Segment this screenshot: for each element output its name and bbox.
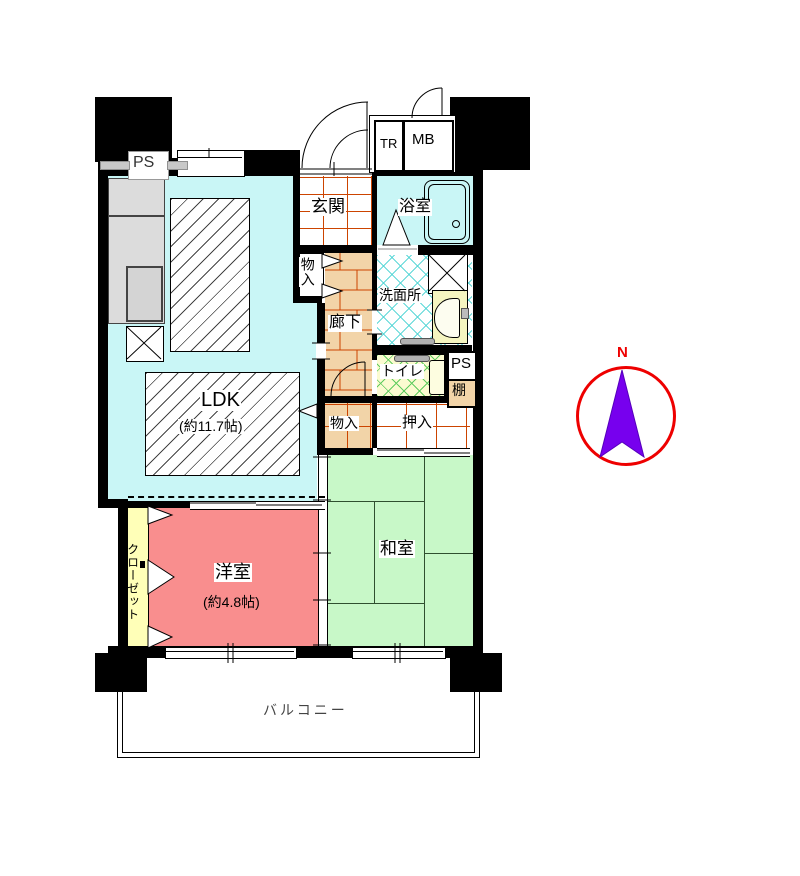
bath-sill bbox=[377, 245, 418, 255]
label-hallway: 廊下 bbox=[328, 315, 362, 332]
ps-hatch-mark bbox=[100, 161, 130, 170]
kitchen-sink bbox=[126, 266, 163, 322]
window-bottom-east-sash bbox=[353, 651, 443, 652]
wall bbox=[293, 245, 372, 253]
ps-hatch-mark bbox=[167, 161, 188, 170]
refrigerator bbox=[108, 178, 165, 216]
label-balcony: バルコニー bbox=[262, 703, 349, 718]
label-western: 洋室 bbox=[214, 563, 252, 582]
door-opening bbox=[316, 343, 326, 359]
washing-machine-pan bbox=[428, 254, 468, 294]
label-western-size: (約4.8帖) bbox=[202, 595, 261, 610]
label-storage-hall: 物入 bbox=[299, 257, 316, 287]
label-ps-mid: PS bbox=[450, 356, 472, 372]
sliding-door-track bbox=[377, 448, 470, 457]
open-boundary-dashed bbox=[128, 496, 325, 498]
pillar bbox=[450, 97, 530, 170]
label-toilet: トイレ bbox=[380, 364, 424, 379]
window-top-sash bbox=[178, 157, 242, 158]
range-box bbox=[126, 326, 164, 362]
wall bbox=[473, 170, 483, 653]
wall bbox=[128, 501, 190, 508]
compass-ring bbox=[576, 366, 676, 466]
wall bbox=[317, 448, 373, 455]
tatami-line bbox=[424, 455, 425, 648]
counter-hatch-area bbox=[170, 198, 250, 352]
wall bbox=[298, 296, 322, 303]
entrance-door-arc bbox=[330, 130, 368, 168]
mb-door-arc bbox=[412, 88, 442, 118]
towel-bar bbox=[400, 338, 435, 345]
sliding-door-track bbox=[190, 501, 325, 510]
label-mb: MB bbox=[411, 132, 436, 148]
door-pivot bbox=[140, 561, 145, 568]
label-closet: クローゼット bbox=[125, 543, 140, 621]
sliding-partition bbox=[318, 455, 328, 648]
wall bbox=[372, 403, 377, 448]
label-japanese: 和室 bbox=[379, 540, 415, 558]
bathtub-drain bbox=[452, 220, 460, 228]
label-bathroom: 浴室 bbox=[398, 199, 432, 216]
bathtub-inner bbox=[428, 184, 466, 240]
label-washroom: 洗面所 bbox=[378, 288, 422, 303]
entrance-door-arc bbox=[302, 102, 368, 168]
wall bbox=[98, 160, 108, 507]
wall bbox=[317, 403, 325, 448]
tatami-line bbox=[325, 603, 424, 604]
floorplan-canvas: PS TR MB 玄関 浴室 洗面所 廊下 トイレ PS 棚 物入 物入 押入 … bbox=[0, 0, 800, 876]
label-ldk-size: (約11.7帖) bbox=[178, 419, 244, 434]
window-bottom-west-sash bbox=[166, 651, 294, 652]
label-genkan: 玄関 bbox=[310, 198, 346, 216]
towel-bar bbox=[394, 355, 430, 362]
label-oshiire: 押入 bbox=[401, 415, 433, 431]
label-ps-top: PS bbox=[132, 155, 155, 172]
tatami-line bbox=[374, 501, 375, 604]
basin-tap bbox=[461, 308, 469, 319]
tatami-line bbox=[424, 553, 473, 554]
wall bbox=[243, 150, 300, 176]
label-north: N bbox=[616, 345, 629, 361]
wall bbox=[418, 245, 473, 255]
label-storage-ldk: 物入 bbox=[329, 416, 359, 431]
label-tr: TR bbox=[379, 137, 398, 151]
label-shelf: 棚 bbox=[451, 383, 467, 398]
door-opening bbox=[372, 310, 377, 334]
label-ldk: LDK bbox=[200, 390, 241, 411]
entrance-sill bbox=[300, 166, 372, 176]
door-opening bbox=[372, 360, 377, 394]
